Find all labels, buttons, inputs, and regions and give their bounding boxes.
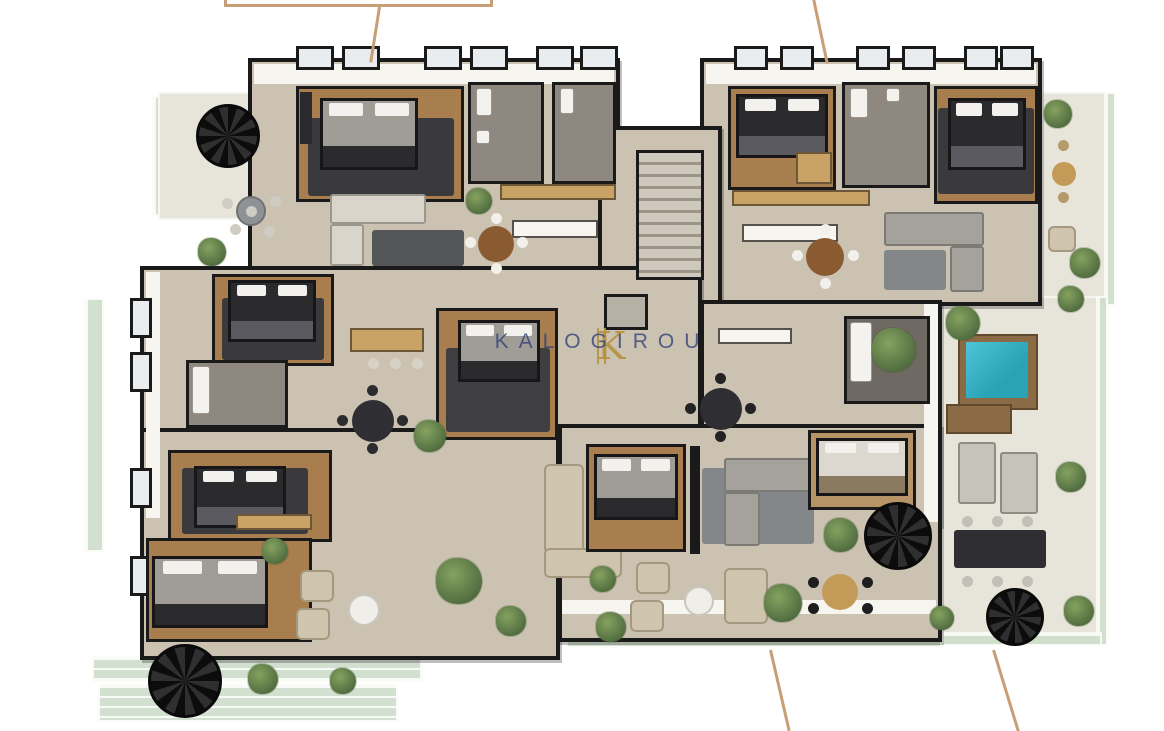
window xyxy=(130,468,152,508)
bar-stools xyxy=(368,358,379,369)
sofa xyxy=(950,246,984,292)
window xyxy=(424,46,462,70)
pillow xyxy=(163,561,203,574)
pillow xyxy=(788,99,819,111)
spiral-staircase xyxy=(864,502,932,570)
dining-chairs xyxy=(715,403,726,414)
plant xyxy=(466,188,492,214)
bed xyxy=(816,438,908,496)
leader-line xyxy=(992,650,1020,731)
plant xyxy=(872,328,916,372)
plant xyxy=(824,518,858,552)
rug xyxy=(372,230,464,266)
pillow xyxy=(246,471,277,482)
outdoor-armchair xyxy=(636,562,670,594)
sofa xyxy=(544,464,584,554)
outdoor-dining-table xyxy=(954,530,1046,568)
window xyxy=(734,46,768,70)
plant xyxy=(596,612,626,642)
window xyxy=(130,352,152,392)
bed-throw xyxy=(323,146,415,167)
pool xyxy=(966,342,1028,398)
balcony-glass xyxy=(1104,92,1116,306)
outdoor-chairs xyxy=(246,206,257,217)
plant xyxy=(590,566,616,592)
outdoor-armchair xyxy=(300,570,334,602)
sofa xyxy=(884,212,984,246)
lounger xyxy=(1000,452,1038,514)
window xyxy=(856,46,890,70)
plant xyxy=(946,306,980,340)
leader-line xyxy=(769,650,791,731)
toilet xyxy=(560,88,574,114)
closet xyxy=(236,514,312,530)
plant xyxy=(198,238,226,266)
balcony-glass xyxy=(1096,296,1108,646)
sofa xyxy=(330,224,364,266)
kitchen-counter xyxy=(732,190,870,206)
pillow xyxy=(278,285,308,296)
pillow xyxy=(375,103,408,116)
pillow xyxy=(237,285,267,296)
sofa xyxy=(330,194,426,224)
pillow xyxy=(825,443,856,453)
kitchen-island xyxy=(512,220,598,238)
bed xyxy=(948,98,1026,170)
plant xyxy=(330,668,356,694)
sofa xyxy=(724,458,814,492)
window xyxy=(964,46,998,70)
bathtub xyxy=(192,366,210,414)
staircase xyxy=(636,150,704,280)
window xyxy=(296,46,334,70)
outdoor-armchair xyxy=(630,600,664,632)
pillow xyxy=(745,99,776,111)
window xyxy=(902,46,936,70)
plant xyxy=(496,606,526,636)
pillow xyxy=(641,459,669,471)
bed xyxy=(228,280,316,342)
pillow xyxy=(602,459,630,471)
dining-chairs xyxy=(367,415,378,426)
window xyxy=(470,46,508,70)
bed xyxy=(320,98,418,170)
closet xyxy=(796,152,832,184)
watermark-text: KALOGIROU xyxy=(485,330,710,354)
window xyxy=(342,46,380,70)
kitchen-island xyxy=(350,328,424,352)
floorplan-canvas: K KALOGIROU xyxy=(0,0,1164,731)
outdoor-table xyxy=(1052,162,1076,186)
pillow xyxy=(992,103,1018,116)
window xyxy=(780,46,814,70)
pool-step xyxy=(946,404,1012,434)
bed xyxy=(736,94,828,158)
media-wall xyxy=(690,446,700,554)
rug xyxy=(884,250,946,290)
bed-throw xyxy=(155,604,265,625)
plant xyxy=(436,558,482,604)
plant xyxy=(414,420,446,452)
callout-box xyxy=(224,0,493,7)
bed-throw xyxy=(819,476,905,493)
bed xyxy=(152,556,268,628)
outdoor-armchair xyxy=(1048,226,1076,252)
window xyxy=(1000,46,1034,70)
lounger xyxy=(958,442,996,504)
outdoor-sofa xyxy=(724,568,768,624)
bed xyxy=(594,454,678,520)
plant xyxy=(1056,462,1086,492)
pillow xyxy=(329,103,362,116)
pillow xyxy=(956,103,982,116)
plant xyxy=(1044,100,1072,128)
plant xyxy=(1064,596,1094,626)
bed-throw xyxy=(951,146,1023,167)
pillow xyxy=(868,443,899,453)
balcony-glass xyxy=(84,298,104,552)
sofa xyxy=(724,492,760,546)
toilet xyxy=(850,88,868,118)
toilet xyxy=(476,88,492,116)
window xyxy=(580,46,618,70)
plant xyxy=(930,606,954,630)
plant xyxy=(1070,248,1100,278)
plant xyxy=(262,538,288,564)
outdoor-chairs xyxy=(1058,192,1069,203)
sink xyxy=(476,130,490,144)
dining-chairs xyxy=(491,239,502,250)
wardrobe xyxy=(300,92,312,144)
plant xyxy=(1058,286,1084,312)
window xyxy=(130,298,152,338)
outdoor-armchair xyxy=(296,608,330,640)
spiral-staircase xyxy=(986,588,1044,646)
plant xyxy=(248,664,278,694)
spiral-staircase xyxy=(196,104,260,168)
bed-throw xyxy=(231,321,313,339)
kitchen-counter xyxy=(500,184,616,200)
sink xyxy=(886,88,900,102)
outdoor-coffee-table xyxy=(684,586,714,616)
window xyxy=(536,46,574,70)
outdoor-dining-chairs xyxy=(962,516,973,527)
pillow xyxy=(218,561,258,574)
pillow xyxy=(203,471,234,482)
plant xyxy=(764,584,802,622)
outdoor-dining-chairs xyxy=(835,587,846,598)
bed-throw xyxy=(597,498,675,517)
spiral-staircase xyxy=(148,644,222,718)
bed-throw xyxy=(461,361,537,379)
balcony-glass xyxy=(98,684,398,722)
outdoor-table xyxy=(348,594,380,626)
bathtub xyxy=(850,322,872,382)
dining-chairs xyxy=(820,252,831,263)
kitchen-counter xyxy=(718,328,792,344)
